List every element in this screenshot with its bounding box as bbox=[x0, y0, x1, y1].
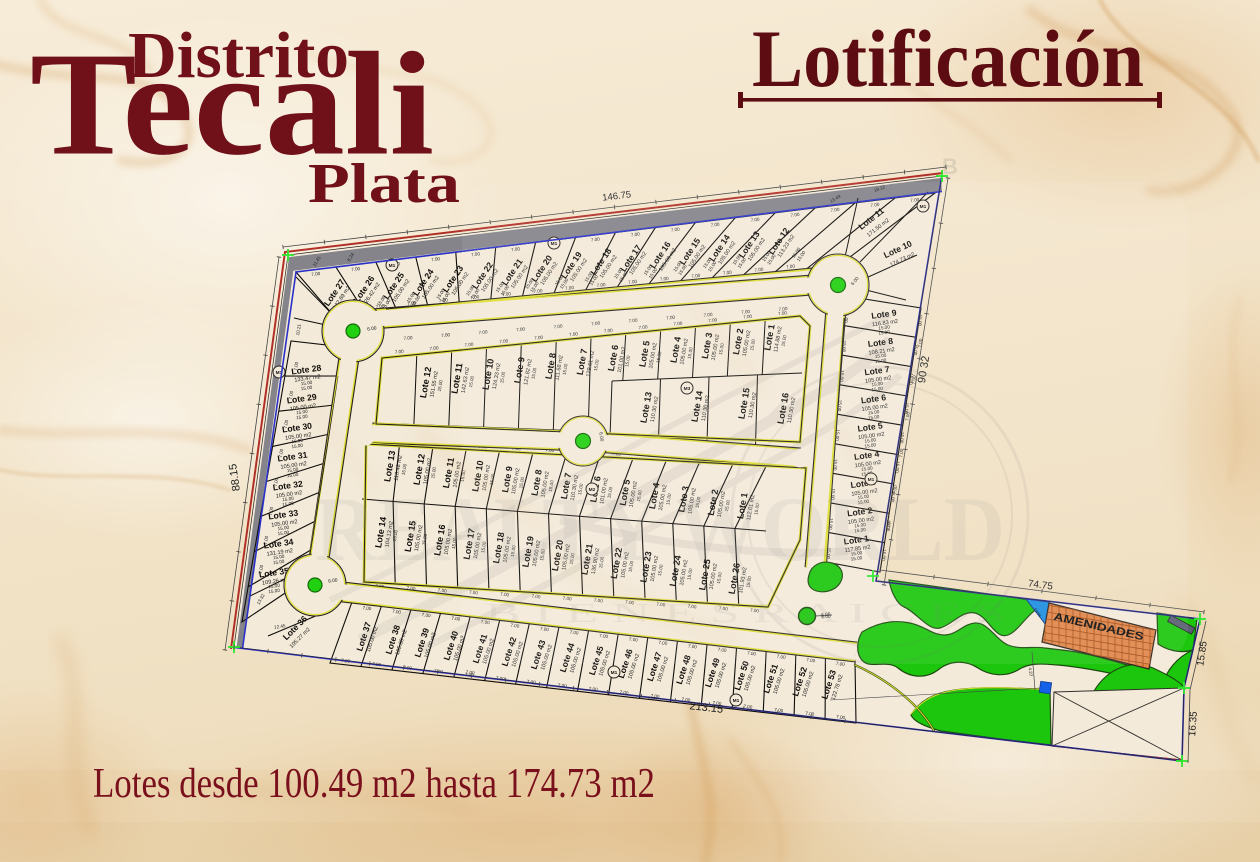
svg-text:7.00: 7.00 bbox=[395, 349, 405, 355]
svg-text:B I E N E S R A I C E S: B I E N E S R A I C E S bbox=[485, 598, 1005, 628]
svg-text:M1: M1 bbox=[733, 698, 740, 704]
svg-text:M1: M1 bbox=[389, 263, 396, 269]
svg-text:7.00: 7.00 bbox=[441, 332, 451, 338]
svg-text:Lotes desde 100.49 m2 hasta 17: Lotes desde 100.49 m2 hasta 174.73 m2 bbox=[93, 761, 655, 807]
svg-text:REALTY WORLD: REALTY WORLD bbox=[315, 478, 1005, 580]
svg-text:4.27: 4.27 bbox=[1028, 667, 1034, 677]
svg-text:7.00: 7.00 bbox=[403, 335, 413, 341]
svg-text:7.00: 7.00 bbox=[465, 670, 475, 676]
svg-text:7.00: 7.00 bbox=[647, 696, 657, 702]
svg-text:Lotificación: Lotificación bbox=[752, 13, 1144, 104]
svg-text:M1: M1 bbox=[611, 670, 618, 676]
svg-text:Plata: Plata bbox=[308, 153, 460, 215]
svg-text:16.35: 16.35 bbox=[1187, 711, 1200, 737]
svg-text:7.00: 7.00 bbox=[429, 345, 439, 351]
svg-text:6.00: 6.00 bbox=[367, 325, 377, 332]
